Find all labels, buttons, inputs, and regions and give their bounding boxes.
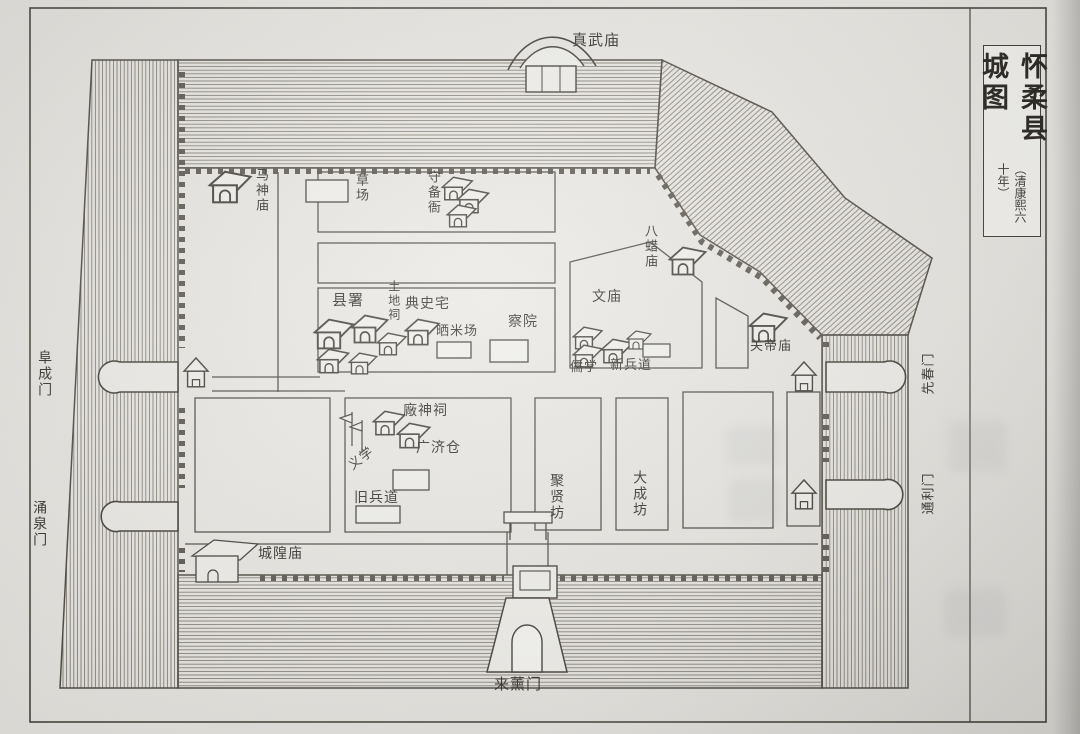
horse-god-temple-icon bbox=[210, 172, 251, 203]
label-guangji-granary: 广济仓 bbox=[416, 440, 461, 456]
label-confucian-school: 儒学 bbox=[570, 361, 598, 376]
label-west-gate: 阜成门 bbox=[36, 350, 52, 398]
county-office-icon bbox=[315, 320, 353, 349]
block-juxian bbox=[535, 398, 601, 530]
label-city-god-temple: 城隍庙 bbox=[258, 546, 303, 562]
rice-drying-yard-icon bbox=[437, 342, 471, 358]
label-south-gate: 来薰门 bbox=[494, 676, 542, 693]
label-inspection-court: 察院 bbox=[508, 314, 538, 330]
old-military-circuit-icon bbox=[356, 506, 400, 523]
label-juxian-arch: 聚贤坊 bbox=[548, 473, 564, 521]
city-wall-northeast bbox=[655, 60, 932, 335]
scanned-map-page: 怀柔县城图 （清康熙六十年） 真武庙 阜成门 涌泉门 来薰门 先春门 通利门 马… bbox=[0, 0, 1080, 734]
county-office-icon bbox=[349, 353, 377, 374]
guandi-temple-icon bbox=[750, 314, 787, 342]
page-title-note: （清康熙六十年） bbox=[995, 163, 1029, 230]
label-horse-god-temple: 马神庙 bbox=[252, 168, 267, 213]
map-title-cartouche: 怀柔县城图 （清康熙六十年） bbox=[983, 45, 1041, 237]
label-east-lower-gate: 通利门 bbox=[923, 463, 938, 523]
label-garrison-office: 守备衙 bbox=[424, 170, 439, 215]
label-east-upper-gate: 先春门 bbox=[923, 343, 938, 403]
page-bleed-mark bbox=[728, 478, 780, 522]
inspection-court-icon bbox=[490, 340, 528, 362]
grass-yard-icon bbox=[306, 180, 348, 202]
label-registrar-residence: 典史宅 bbox=[405, 296, 450, 312]
page-bleed-mark bbox=[944, 588, 1006, 636]
west-gate-passage bbox=[98, 361, 178, 393]
label-grass-yard: 草场 bbox=[352, 173, 367, 203]
bazha-temple-icon bbox=[670, 248, 706, 275]
east-upper-gate-passage bbox=[826, 361, 906, 393]
east-lower-gate-passage bbox=[826, 480, 903, 510]
label-county-office: 县署 bbox=[332, 292, 364, 309]
gate-passages bbox=[98, 361, 905, 532]
registrar-residence-icon bbox=[405, 319, 439, 344]
label-old-military-circuit: 旧兵道 bbox=[354, 490, 399, 506]
label-rice-drying-yard: 晒米场 bbox=[436, 325, 478, 340]
southwest-gate-passage bbox=[101, 502, 178, 532]
county-office-icon bbox=[377, 333, 406, 355]
west-gate-tower-icon bbox=[184, 358, 208, 387]
page-bleed-mark bbox=[948, 420, 1006, 472]
east-upper-gate-tower-icon bbox=[792, 362, 816, 391]
label-chang-god-shrine: 廠神祠 bbox=[403, 403, 448, 419]
east-lower-gate-tower-icon bbox=[792, 480, 816, 509]
label-zhenwu-temple: 真武庙 bbox=[572, 32, 620, 49]
block-east-narrow bbox=[716, 298, 748, 368]
map-drawing bbox=[0, 0, 1080, 734]
label-southwest-gate: 涌泉门 bbox=[31, 500, 47, 548]
label-new-military-circuit: 新兵道 bbox=[610, 359, 652, 374]
label-earth-god-shrine: 土地祠 bbox=[386, 280, 400, 322]
new-military-circuit-icon bbox=[643, 344, 670, 357]
label-guandi-temple: 关帝庙 bbox=[750, 340, 792, 355]
block-strip bbox=[318, 243, 555, 283]
page-title: 怀柔县城图 bbox=[973, 52, 1051, 161]
city-wall-north bbox=[178, 60, 662, 168]
block-west-empty bbox=[195, 398, 330, 532]
label-confucian-temple: 文庙 bbox=[592, 289, 622, 305]
label-bazha-temple: 八蜡庙 bbox=[641, 224, 656, 269]
yard-icon bbox=[393, 470, 429, 490]
flagpole-icon bbox=[340, 412, 362, 452]
county-office-icon bbox=[317, 349, 348, 372]
garrison-office-icon bbox=[447, 205, 476, 227]
page-bleed-mark bbox=[726, 426, 780, 466]
label-dacheng-arch: 大成坊 bbox=[631, 470, 647, 518]
